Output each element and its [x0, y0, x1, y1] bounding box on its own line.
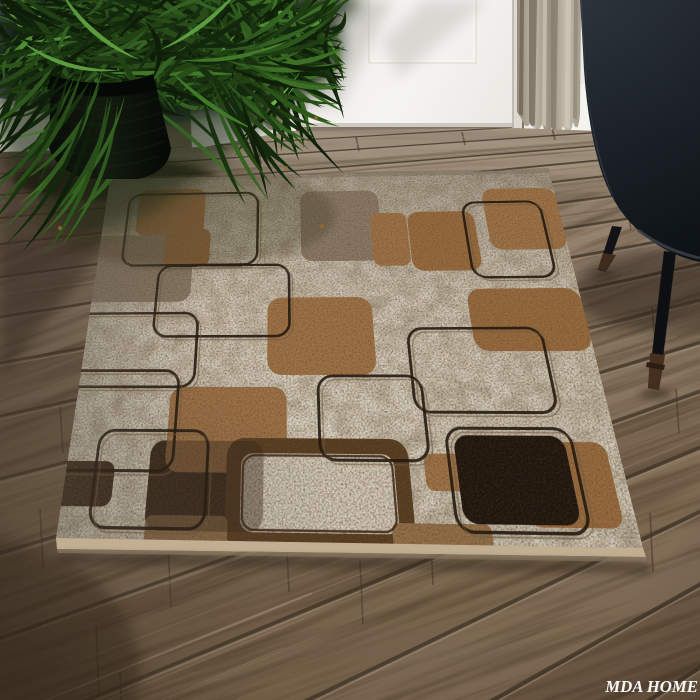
svg-text:MDA HOME: MDA HOME: [604, 677, 698, 696]
